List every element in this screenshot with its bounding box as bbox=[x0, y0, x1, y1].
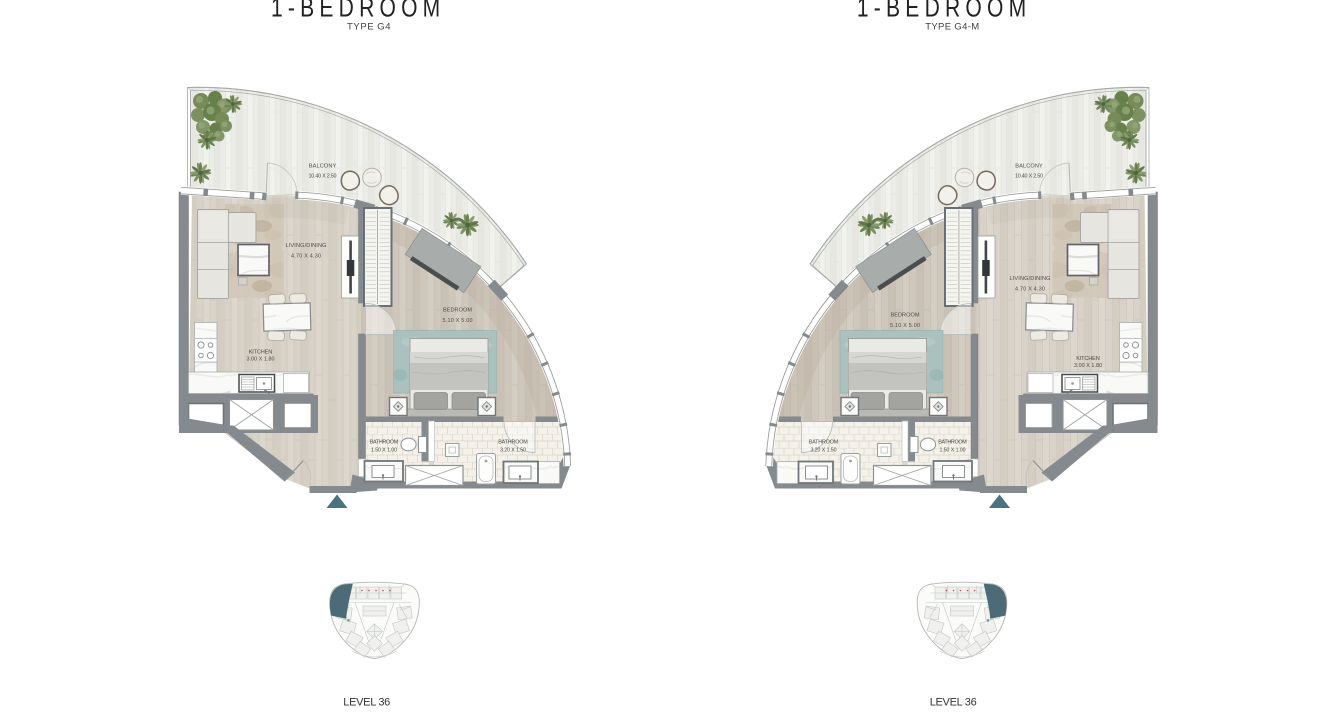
svg-text:BATHROOM: BATHROOM bbox=[498, 440, 528, 446]
svg-text:BATHROOM: BATHROOM bbox=[370, 440, 399, 446]
svg-text:BATHROOM: BATHROOM bbox=[809, 440, 839, 446]
svg-text:4.70 X 4.30: 4.70 X 4.30 bbox=[291, 254, 321, 260]
svg-text:LIVING/DINING: LIVING/DINING bbox=[1010, 276, 1051, 282]
svg-text:1.50 X 1.00: 1.50 X 1.00 bbox=[371, 448, 397, 454]
svg-text:3.20 X 1.50: 3.20 X 1.50 bbox=[500, 448, 526, 454]
svg-text:3.00 X 1.80: 3.00 X 1.80 bbox=[1074, 363, 1102, 369]
svg-text:4.70 X 4.30: 4.70 X 4.30 bbox=[1015, 287, 1045, 293]
svg-text:BALCONY: BALCONY bbox=[1015, 164, 1043, 170]
svg-text:BALCONY: BALCONY bbox=[309, 164, 337, 170]
svg-text:BATHROOM: BATHROOM bbox=[938, 440, 967, 446]
svg-text:KITCHEN: KITCHEN bbox=[1076, 356, 1100, 362]
svg-text:LIVING/DINING: LIVING/DINING bbox=[286, 243, 327, 249]
svg-text:KITCHEN: KITCHEN bbox=[249, 350, 273, 356]
svg-text:5.10 X 5.00: 5.10 X 5.00 bbox=[443, 318, 473, 324]
svg-text:3.20 X 1.50: 3.20 X 1.50 bbox=[811, 448, 837, 454]
svg-text:3.00 X 1.80: 3.00 X 1.80 bbox=[247, 357, 275, 363]
svg-text:1.50 X 1.00: 1.50 X 1.00 bbox=[940, 448, 966, 454]
svg-text:10.40 X 2.50: 10.40 X 2.50 bbox=[309, 174, 337, 180]
svg-text:BEDROOM: BEDROOM bbox=[443, 308, 472, 314]
svg-text:TYPE G4: TYPE G4 bbox=[347, 22, 391, 33]
svg-text:BEDROOM: BEDROOM bbox=[891, 313, 920, 319]
svg-text:TYPE G4-M: TYPE G4-M bbox=[925, 22, 979, 33]
svg-text:5.10 X 5.00: 5.10 X 5.00 bbox=[890, 323, 920, 329]
svg-text:10.40 X 2.50: 10.40 X 2.50 bbox=[1015, 174, 1043, 180]
svg-text:LEVEL 36: LEVEL 36 bbox=[930, 697, 977, 707]
svg-text:LEVEL 36: LEVEL 36 bbox=[343, 697, 390, 707]
